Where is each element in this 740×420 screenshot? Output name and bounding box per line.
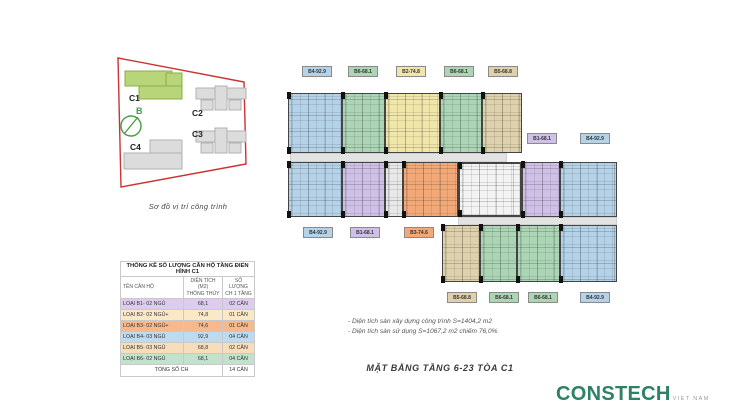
building-label-c2: C2 — [192, 108, 203, 118]
unit-b3 — [403, 162, 458, 217]
unit-label-chip: B1-68.1 — [350, 227, 380, 238]
unit-label-chip: B2-74.8 — [396, 66, 426, 77]
table-row: LOẠI B3- 02 NGỦ+74,601 CĂN — [121, 320, 255, 331]
unit-b1 — [522, 162, 560, 217]
site-location-diagram: B C1 C2 C3 C4 — [0, 0, 280, 230]
unit-b6 — [517, 225, 560, 282]
north-compass-icon — [121, 116, 141, 136]
unit-label-chip: B6-68.1 — [444, 66, 474, 77]
building-c3 — [196, 128, 246, 153]
table-title: THỐNG KÊ SỐ LƯỢNG CĂN HỘ TẦNG ĐIỂN HÌNH … — [121, 262, 255, 277]
unit-label-chip: B6-68.1 — [528, 292, 558, 303]
note-built-area: - Diện tích sàn xây dựng công trình S=14… — [348, 317, 498, 327]
col-header-name: TÊN CĂN HỘ — [121, 277, 184, 299]
total-value: 14 CĂN — [223, 364, 255, 376]
table-row: LOẠI B4- 03 NGỦ92,904 CĂN — [121, 331, 255, 342]
compass-north-label: B — [136, 106, 143, 116]
table-row: LOẠI B2- 02 NGỦ+74,801 CĂN — [121, 309, 255, 320]
unit-label-chip: B3-74.6 — [404, 227, 434, 238]
unit-label-chip: B5-68.8 — [488, 66, 518, 77]
unit-b4 — [560, 225, 617, 282]
unit-b2 — [385, 93, 440, 153]
table-total-row: TỔNG SỐ CH 14 CĂN — [121, 364, 255, 376]
unit-b4 — [288, 93, 342, 153]
unit-b6 — [480, 225, 517, 282]
building-label-c3: C3 — [192, 129, 203, 139]
unit-label-chip: B4-92.9 — [302, 66, 332, 77]
unit-b5 — [482, 93, 522, 153]
logo-subtext: VIET NAM — [673, 396, 710, 402]
unit-label-chip: B6-68.1 — [348, 66, 378, 77]
unit-label-chip: B5-68.8 — [447, 292, 477, 303]
note-usable-area: - Diện tích sàn sử dụng S=1067,2 m2 chiế… — [348, 327, 498, 337]
area-notes: - Diện tích sàn xây dựng công trình S=14… — [348, 317, 498, 337]
unit-label-chip: B4-92.9 — [580, 292, 610, 303]
unit-b6 — [440, 93, 482, 153]
table-row: LOẠI B6- 02 NGỦ68,104 CĂN — [121, 353, 255, 364]
unit-label-chip: B4-92.9 — [580, 133, 610, 144]
unit-b4 — [288, 162, 342, 217]
constech-logo: CONSTECH VIET NAM — [556, 383, 710, 406]
hallway — [385, 162, 403, 217]
table-row: LOẠI B5- 03 NGỦ68,802 CĂN — [121, 342, 255, 353]
unit-b1 — [342, 162, 385, 217]
unit-label-chip: B1-68.1 — [527, 133, 557, 144]
building-label-c1: C1 — [129, 93, 140, 103]
corridor-upper — [290, 153, 507, 162]
total-label: TỔNG SỐ CH — [121, 364, 223, 376]
logo-text: CONSTECH — [556, 383, 671, 406]
col-header-area: DIỆN TÍCH (M2)THÔNG THỦY — [184, 277, 223, 299]
unit-label-chip: B4-92.9 — [303, 227, 333, 238]
page: B C1 C2 C3 C4 Sơ đồ vị trí công trình TH… — [0, 0, 740, 420]
apartment-stats-table: THỐNG KÊ SỐ LƯỢNG CĂN HỘ TẦNG ĐIỂN HÌNH … — [120, 261, 255, 377]
unit-b5 — [442, 225, 480, 282]
building-label-c4: C4 — [130, 142, 141, 152]
building-c2 — [196, 86, 246, 110]
site-diagram-caption: Sơ đồ vị trí công trình — [118, 202, 258, 211]
floor-plan-caption: MẶT BẰNG TẦNG 6-23 TÒA C1 — [300, 363, 580, 373]
unit-b4 — [560, 162, 617, 217]
unit-b6 — [342, 93, 385, 153]
corridor-lower — [458, 217, 617, 225]
table-row: LOẠI B1- 02 NGỦ68,102 CĂN — [121, 298, 255, 309]
service-core — [458, 162, 522, 217]
col-header-count: SỐ LƯỢNGCH 1 TẦNG — [223, 277, 255, 299]
unit-label-chip: B6-68.1 — [489, 292, 519, 303]
